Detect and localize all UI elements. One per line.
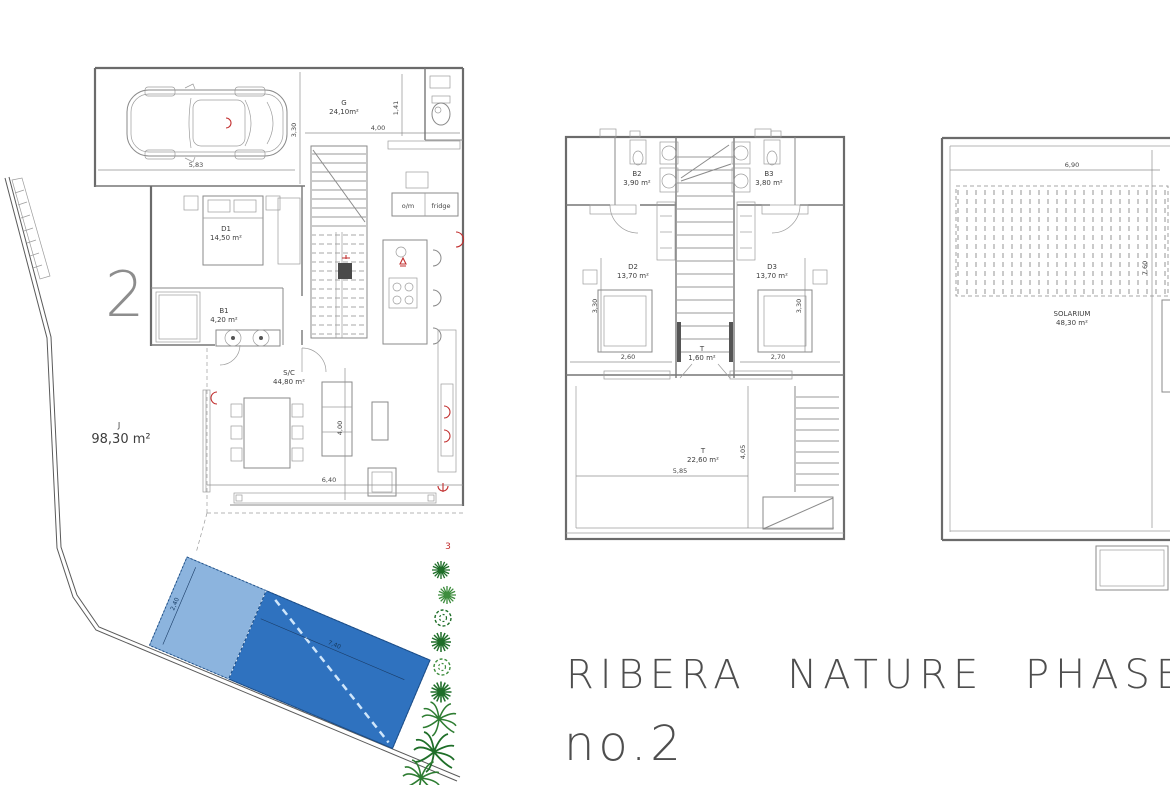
landing-area-label: 1,60 m² (688, 354, 716, 362)
terrace-depth-dim: 4,05 (739, 445, 747, 459)
ground-floor-plan: G 24,10m² 5,83 3,30 4,00 1,41 (5, 68, 464, 785)
bedroom2-code-label: D2 (628, 263, 638, 271)
bath1-area-label: 4,20 m² (210, 316, 238, 324)
bedroom-d3: D3 13,70 m² 3,30 (737, 202, 827, 352)
terrace-code-label: T (700, 447, 706, 455)
floorplan-drawing: G 24,10m² 5,83 3,30 4,00 1,41 (0, 0, 1170, 785)
bedroom3-depth-dim: 3,30 (795, 299, 803, 313)
garage-depth-dim: 3,30 (290, 123, 298, 137)
bedroom-d2: D2 13,70 m² 3,30 (583, 202, 675, 352)
bath2-area-label: 3,90 m² (623, 179, 651, 187)
garage-code-label: G (341, 99, 346, 107)
project-subtitle: no.2 (564, 716, 685, 772)
bath2-code-label: B2 (632, 170, 641, 178)
garden-area-label: 98,30 m² (91, 432, 150, 447)
bathroom-b1: B1 4,20 m² (151, 288, 283, 365)
oven-microwave-label: o/m (402, 202, 415, 210)
kitchen-wc-column: o/m fridge (388, 68, 463, 216)
solarium-area-label: 48,30 m² (1056, 319, 1088, 327)
solarium-depth-dim: 7,60 (1141, 261, 1149, 275)
solarium-plan: 6,90 7,60 SOLARIUM 48,30 m² (942, 138, 1170, 590)
bedroom1-area-label: 14,50 m² (210, 234, 242, 242)
bedroom1-code-label: D1 (221, 225, 231, 233)
bath3-code-label: B3 (764, 170, 773, 178)
solarium-label: SOLARIUM (1054, 310, 1091, 318)
garden-code-label: J (117, 421, 120, 430)
living-code-label: S/C (283, 369, 295, 377)
first-floor-plan: B2 3,90 m² B3 3,80 m² D2 (566, 129, 844, 539)
bedroom2-width-dim: 2,60 (621, 353, 635, 361)
bedroom2-area-label: 13,70 m² (617, 272, 649, 280)
plot-number: 2 (105, 258, 144, 331)
landing-code-label: T (699, 345, 705, 353)
living-width-dim: 6,40 (322, 476, 336, 484)
staircase-first-floor (676, 137, 734, 378)
swimming-pool: 7,40 2,40 (149, 557, 430, 749)
kitchen-island (383, 240, 441, 344)
bedroom3-code-label: D3 (767, 263, 777, 271)
terrace-area-label: 22,60 m² (687, 456, 719, 464)
staircase-ground (311, 146, 367, 338)
living-area-label: 44,80 m² (273, 378, 305, 386)
terrace-width-dim: 5,85 (673, 467, 687, 475)
bedroom2-depth-dim: 3,30 (591, 299, 599, 313)
car-red-mark (226, 118, 231, 128)
living-depth-dim: 4,00 (336, 421, 344, 435)
bedroom-d1: D1 14,50 m² (184, 186, 302, 345)
neighbor-plot-number: 3 (445, 542, 451, 552)
pergola (956, 186, 1168, 296)
bathroom-b3: B3 3,80 m² (732, 137, 844, 233)
bath3-area-label: 3,80 m² (755, 179, 783, 187)
project-title: RIBERA NATURE PHASE (566, 652, 1170, 698)
left-wall-red-mark (211, 392, 217, 404)
garden-boundary-dashed (196, 348, 463, 553)
wc-width-dim: 1,41 (392, 101, 400, 115)
bedroom3-width-dim: 2,70 (771, 353, 785, 361)
floorplan-sheet: G 24,10m² 5,83 3,30 4,00 1,41 (0, 0, 1170, 785)
media-red-marks (444, 406, 450, 442)
sheet-title: RIBERA NATURE PHASE no.2 (564, 652, 1170, 772)
bedroom3-area-label: 13,70 m² (756, 272, 788, 280)
garage-width-dim: 5,83 (189, 161, 203, 169)
bathroom-b2: B2 3,90 m² (566, 137, 678, 233)
bath1-code-label: B1 (219, 307, 228, 315)
fridge-label: fridge (431, 202, 450, 210)
hob-red-symbol (400, 258, 406, 266)
solarium-width-dim: 6,90 (1065, 161, 1079, 169)
garage-area-label: 24,10m² (329, 108, 359, 116)
kitchen-width-dim: 4,00 (371, 124, 385, 132)
car (127, 84, 287, 162)
corner-red-mark (438, 483, 448, 492)
terrace: T 22,60 m² 5,85 4,05 (566, 386, 844, 533)
